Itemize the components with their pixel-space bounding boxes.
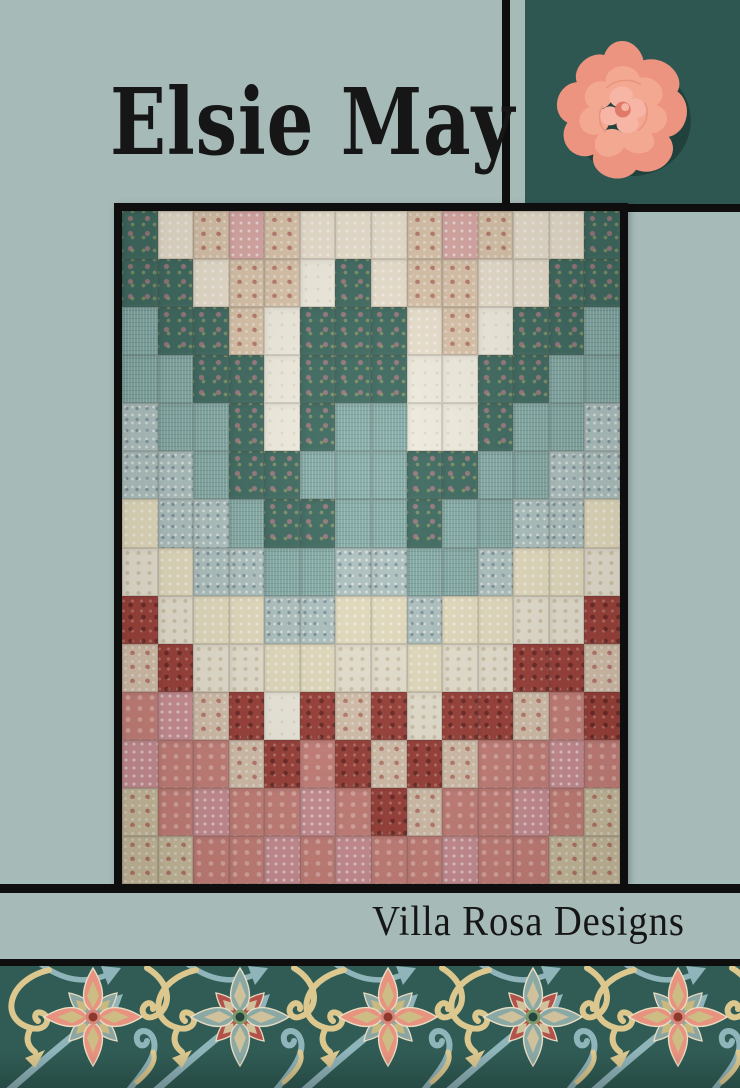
quilt-patch <box>229 788 265 836</box>
quilt-patch <box>264 403 300 451</box>
quilt-patch <box>371 355 407 403</box>
quilt-patch <box>513 451 549 499</box>
quilt-patch <box>442 644 478 692</box>
quilt-patch <box>549 596 585 644</box>
quilt-patch <box>229 596 265 644</box>
quilt-patch <box>407 259 443 307</box>
quilt-patch <box>122 596 158 644</box>
quilt-patch <box>122 211 158 259</box>
quilt-patch <box>478 548 514 596</box>
quilt-photo <box>122 211 620 884</box>
quilt-patch <box>122 788 158 836</box>
quilt-patch <box>442 740 478 788</box>
quilt-patch <box>442 548 478 596</box>
quilt-patch <box>229 740 265 788</box>
quilt-patch <box>158 596 194 644</box>
quilt-patch <box>549 211 585 259</box>
quilt-patch <box>478 740 514 788</box>
pattern-cover-page: Elsie May Villa Rosa Designs <box>0 0 740 1088</box>
quilt-patch <box>193 355 229 403</box>
quilt-patch <box>371 259 407 307</box>
quilt-patch <box>122 451 158 499</box>
quilt-patch <box>549 692 585 740</box>
quilt-patch <box>407 692 443 740</box>
quilt-patch <box>513 836 549 884</box>
quilt-patch <box>584 307 620 355</box>
quilt-patch <box>264 499 300 547</box>
quilt-patch <box>584 692 620 740</box>
quilt-patch <box>335 451 371 499</box>
border-top-rule <box>0 959 740 966</box>
quilt-patch <box>229 355 265 403</box>
brand-name: Villa Rosa Designs <box>345 901 685 943</box>
quilt-patch <box>478 692 514 740</box>
quilt-patch <box>407 211 443 259</box>
quilt-patch <box>264 307 300 355</box>
quilt-patch <box>478 836 514 884</box>
quilt-patch <box>193 596 229 644</box>
quilt-patch <box>478 355 514 403</box>
quilt-patch <box>549 548 585 596</box>
border-ornament <box>0 966 740 1088</box>
quilt-patch <box>407 644 443 692</box>
quilt-patch <box>264 740 300 788</box>
quilt-patch <box>300 211 336 259</box>
quilt-patch <box>158 499 194 547</box>
page-title: Elsie May <box>110 76 616 168</box>
quilt-patch <box>549 740 585 788</box>
quilt-patch <box>229 548 265 596</box>
quilt-patch <box>158 307 194 355</box>
quilt-patch <box>229 307 265 355</box>
quilt-patch <box>229 403 265 451</box>
quilt-patch <box>264 596 300 644</box>
quilt-patch <box>442 451 478 499</box>
quilt-patch <box>549 307 585 355</box>
quilt-patch <box>193 211 229 259</box>
quilt-patch <box>407 355 443 403</box>
quilt-patch <box>193 451 229 499</box>
quilt-patch <box>478 451 514 499</box>
quilt-patch <box>584 596 620 644</box>
quilt-patch <box>122 644 158 692</box>
quilt-patch <box>300 403 336 451</box>
quilt-patch <box>549 259 585 307</box>
quilt-patch <box>549 644 585 692</box>
quilt-patch <box>371 211 407 259</box>
quilt-patch <box>193 644 229 692</box>
quilt-patch <box>442 307 478 355</box>
quilt-patch <box>300 499 336 547</box>
quilt-patch <box>335 596 371 644</box>
quilt-patch <box>513 692 549 740</box>
quilt-patch <box>513 644 549 692</box>
quilt-patch <box>371 451 407 499</box>
quilt-patch <box>478 644 514 692</box>
brand-name-text: Villa Rosa Designs <box>372 901 685 943</box>
quilt-patch <box>193 548 229 596</box>
quilt-patch <box>193 259 229 307</box>
quilt-patch <box>549 788 585 836</box>
quilt-patch <box>584 259 620 307</box>
quilt-patch <box>264 788 300 836</box>
quilt-patch <box>122 499 158 547</box>
quilt-patch <box>264 259 300 307</box>
quilt-patch <box>300 307 336 355</box>
quilt-patch <box>371 788 407 836</box>
quilt-patch <box>335 355 371 403</box>
quilt-patch <box>549 499 585 547</box>
quilt-patch <box>264 355 300 403</box>
quilt-patch <box>193 836 229 884</box>
quilt-patch <box>549 836 585 884</box>
quilt-patch <box>584 211 620 259</box>
quilt-patch <box>549 451 585 499</box>
quilt-patch <box>584 740 620 788</box>
quilt-patch <box>513 259 549 307</box>
quilt-patch <box>335 740 371 788</box>
quilt-patch <box>264 451 300 499</box>
quilt-patch <box>193 403 229 451</box>
quilt-patch <box>407 788 443 836</box>
quilt-patch <box>300 355 336 403</box>
quilt-patch <box>158 740 194 788</box>
quilt-patch <box>371 499 407 547</box>
quilt-patch <box>407 403 443 451</box>
quilt-patch <box>193 692 229 740</box>
quilt-patch <box>158 403 194 451</box>
quilt-patch <box>335 499 371 547</box>
quilt-patch <box>300 596 336 644</box>
quilt-patch <box>300 451 336 499</box>
quilt-patch <box>442 403 478 451</box>
quilt-patch <box>335 788 371 836</box>
quilt-patch <box>335 211 371 259</box>
quilt-patch <box>478 499 514 547</box>
quilt-patch <box>407 836 443 884</box>
quilt-patch <box>122 259 158 307</box>
quilt-patch <box>371 644 407 692</box>
quilt-patch <box>122 548 158 596</box>
quilt-patch <box>513 403 549 451</box>
quilt-patch <box>513 740 549 788</box>
quilt-patch <box>442 692 478 740</box>
quilt-patch <box>371 740 407 788</box>
bottom-horizontal-divider <box>0 884 740 893</box>
quilt-patch <box>549 355 585 403</box>
quilt-patch <box>158 644 194 692</box>
quilt-patch <box>335 692 371 740</box>
quilt-patch <box>264 548 300 596</box>
quilt-patch <box>442 211 478 259</box>
quilt-patch <box>229 451 265 499</box>
quilt-patch <box>335 548 371 596</box>
quilt-patch <box>335 403 371 451</box>
quilt-patch <box>584 499 620 547</box>
quilt-patch <box>122 740 158 788</box>
quilt-patch <box>442 259 478 307</box>
quilt-patch <box>229 644 265 692</box>
quilt-patch <box>442 355 478 403</box>
quilt-patch <box>478 596 514 644</box>
quilt-patch <box>158 836 194 884</box>
quilt-patch <box>513 499 549 547</box>
quilt-patch <box>335 644 371 692</box>
quilt-patch <box>407 307 443 355</box>
quilt-patch <box>229 692 265 740</box>
quilt-patch <box>158 211 194 259</box>
quilt-patch <box>300 740 336 788</box>
quilt-patch <box>300 692 336 740</box>
quilt-patch <box>371 596 407 644</box>
quilt-patch <box>584 451 620 499</box>
quilt-patch <box>513 596 549 644</box>
quilt-patch <box>229 836 265 884</box>
quilt-patch <box>229 499 265 547</box>
quilt-patch <box>122 355 158 403</box>
quilt-patch <box>549 403 585 451</box>
quilt-patch <box>478 307 514 355</box>
quilt-photo-frame <box>114 203 628 884</box>
quilt-patch <box>407 548 443 596</box>
quilt-patch <box>229 211 265 259</box>
quilt-patch <box>300 788 336 836</box>
quilt-patch <box>407 740 443 788</box>
quilt-patch <box>371 836 407 884</box>
quilt-patch <box>158 451 194 499</box>
quilt-patch <box>513 355 549 403</box>
quilt-patch <box>122 403 158 451</box>
quilt-patch <box>407 499 443 547</box>
quilt-patch <box>193 499 229 547</box>
quilt-patch <box>122 836 158 884</box>
quilt-patch <box>300 836 336 884</box>
quilt-patch <box>442 596 478 644</box>
quilt-patch <box>371 692 407 740</box>
quilt-patch <box>478 259 514 307</box>
quilt-patch <box>513 307 549 355</box>
quilt-patch <box>158 355 194 403</box>
quilt-patch <box>407 451 443 499</box>
quilt-patch <box>407 596 443 644</box>
quilt-patch <box>193 307 229 355</box>
quilt-patch <box>478 403 514 451</box>
quilt-patch <box>442 788 478 836</box>
quilt-patch <box>158 259 194 307</box>
quilt-patch <box>478 211 514 259</box>
quilt-patch <box>584 644 620 692</box>
quilt-patch <box>335 307 371 355</box>
quilt-patch <box>513 548 549 596</box>
quilt-patch <box>300 259 336 307</box>
decorative-border <box>0 966 740 1088</box>
quilt-patch <box>442 499 478 547</box>
quilt-patch <box>478 788 514 836</box>
quilt-patch <box>513 788 549 836</box>
quilt-patch <box>371 548 407 596</box>
page-title-text: Elsie May <box>110 76 515 168</box>
quilt-patch <box>371 307 407 355</box>
quilt-patch <box>584 788 620 836</box>
quilt-patch <box>264 836 300 884</box>
quilt-patch <box>158 692 194 740</box>
quilt-patch <box>584 548 620 596</box>
quilt-patch <box>264 211 300 259</box>
quilt-patch <box>300 548 336 596</box>
quilt-patch <box>122 307 158 355</box>
quilt-patch <box>122 692 158 740</box>
quilt-patch <box>335 836 371 884</box>
quilt-patch <box>264 644 300 692</box>
quilt-patch <box>584 355 620 403</box>
quilt-patch <box>513 211 549 259</box>
quilt-patch <box>584 403 620 451</box>
quilt-patch <box>371 403 407 451</box>
quilt-patch <box>335 259 371 307</box>
quilt-patch <box>229 259 265 307</box>
quilt-patch <box>193 740 229 788</box>
quilt-patch <box>158 548 194 596</box>
quilt-patch <box>158 788 194 836</box>
quilt-patch <box>193 788 229 836</box>
quilt-patch <box>264 692 300 740</box>
quilt-patch <box>584 836 620 884</box>
quilt-patch <box>300 644 336 692</box>
quilt-patch <box>442 836 478 884</box>
